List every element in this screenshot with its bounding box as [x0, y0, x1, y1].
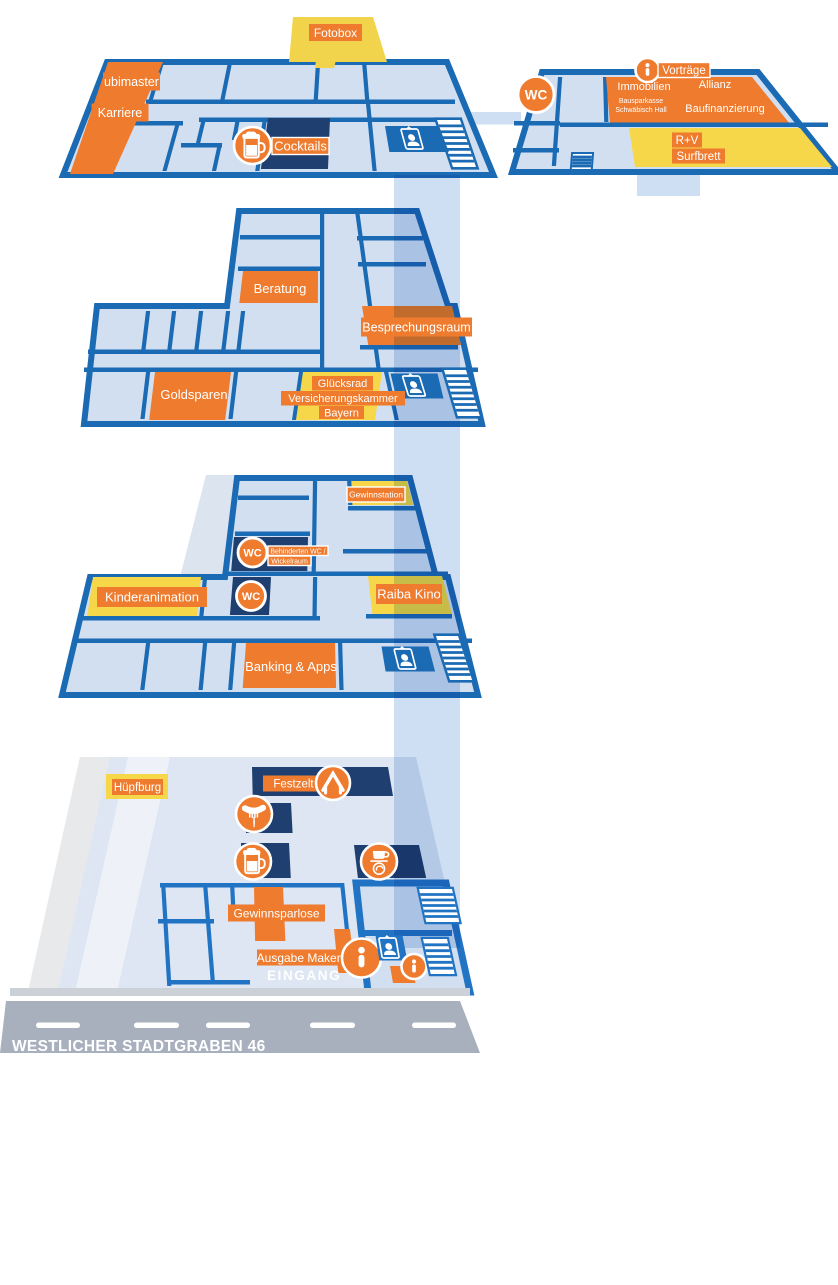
- svg-text:Behinderten WC /: Behinderten WC /: [270, 548, 325, 555]
- svg-text:Hüpfburg: Hüpfburg: [114, 782, 161, 794]
- svg-text:Ausgabe Makerl: Ausgabe Makerl: [257, 951, 344, 965]
- svg-text:WC: WC: [243, 547, 261, 559]
- svg-text:Fotobox: Fotobox: [314, 26, 357, 40]
- svg-text:Glücksrad: Glücksrad: [318, 378, 368, 390]
- svg-text:Gewinnstation: Gewinnstation: [349, 490, 403, 500]
- svg-text:Kinderanimation: Kinderanimation: [105, 590, 199, 605]
- svg-text:Allianz: Allianz: [699, 79, 731, 91]
- svg-text:WC: WC: [525, 87, 548, 102]
- svg-text:Karriere: Karriere: [98, 106, 143, 120]
- svg-text:EINGANG: EINGANG: [267, 968, 341, 983]
- svg-text:Versicherungskammer: Versicherungskammer: [288, 393, 398, 405]
- svg-text:Gewinnsparlose: Gewinnsparlose: [233, 906, 319, 920]
- svg-text:R+V: R+V: [676, 135, 699, 147]
- svg-text:Beratung: Beratung: [254, 281, 307, 296]
- svg-text:Cocktails: Cocktails: [274, 139, 327, 154]
- svg-text:Bayern: Bayern: [324, 407, 359, 419]
- svg-text:Festzelt: Festzelt: [273, 779, 314, 791]
- svg-text:Vorträge: Vorträge: [662, 65, 705, 77]
- svg-text:Wickelraum: Wickelraum: [271, 558, 308, 565]
- svg-text:Immobilien: Immobilien: [617, 81, 670, 93]
- svg-text:Surfbrett: Surfbrett: [676, 151, 721, 163]
- svg-text:WC: WC: [242, 591, 260, 603]
- svg-text:Baufinanzierung: Baufinanzierung: [685, 103, 765, 115]
- svg-text:Goldsparen: Goldsparen: [160, 387, 227, 402]
- svg-text:Raiba Kino: Raiba Kino: [377, 587, 441, 602]
- svg-text:Banking & Apps: Banking & Apps: [245, 659, 337, 674]
- svg-text:Besprechungsraum: Besprechungsraum: [362, 321, 470, 335]
- svg-text:Schwäbisch Hall: Schwäbisch Hall: [615, 107, 667, 114]
- svg-text:WESTLICHER STADTGRABEN 46: WESTLICHER STADTGRABEN 46: [12, 1038, 266, 1055]
- svg-text:ubimaster: ubimaster: [104, 75, 159, 89]
- svg-text:Bausparkasse: Bausparkasse: [619, 98, 663, 105]
